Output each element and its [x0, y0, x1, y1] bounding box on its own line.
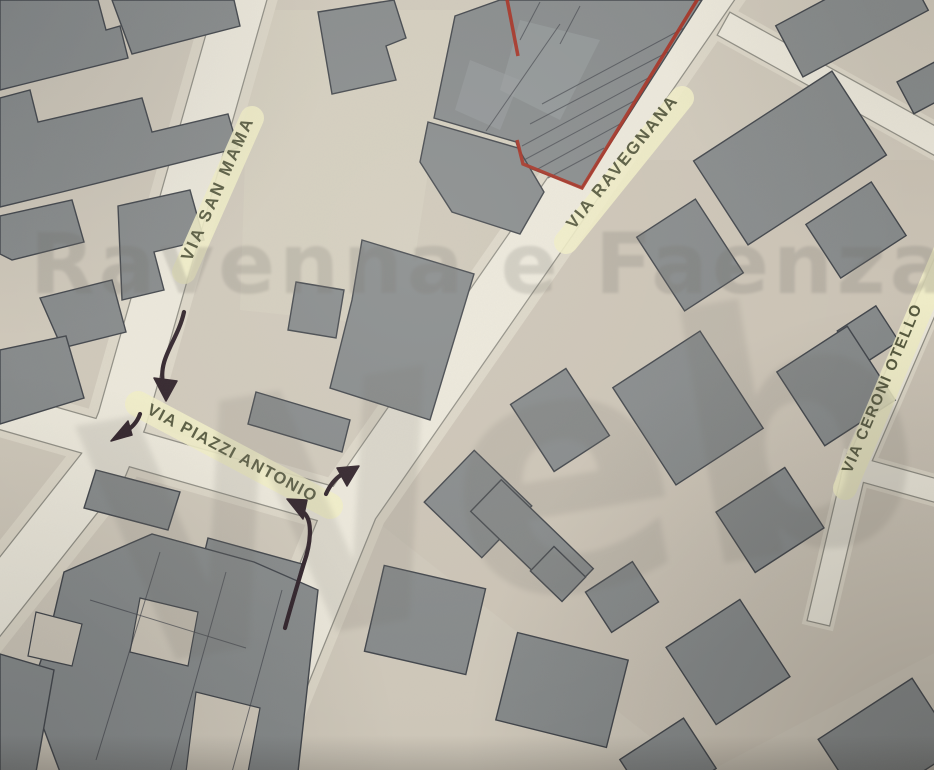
city-map-image: VIA SAN MAMAVIA RAVEGNANAVIA PIAZZI ANTO… — [0, 0, 934, 770]
map-viewport: VIA SAN MAMAVIA RAVEGNANAVIA PIAZZI ANTO… — [0, 0, 934, 770]
photo-grain — [0, 0, 934, 770]
